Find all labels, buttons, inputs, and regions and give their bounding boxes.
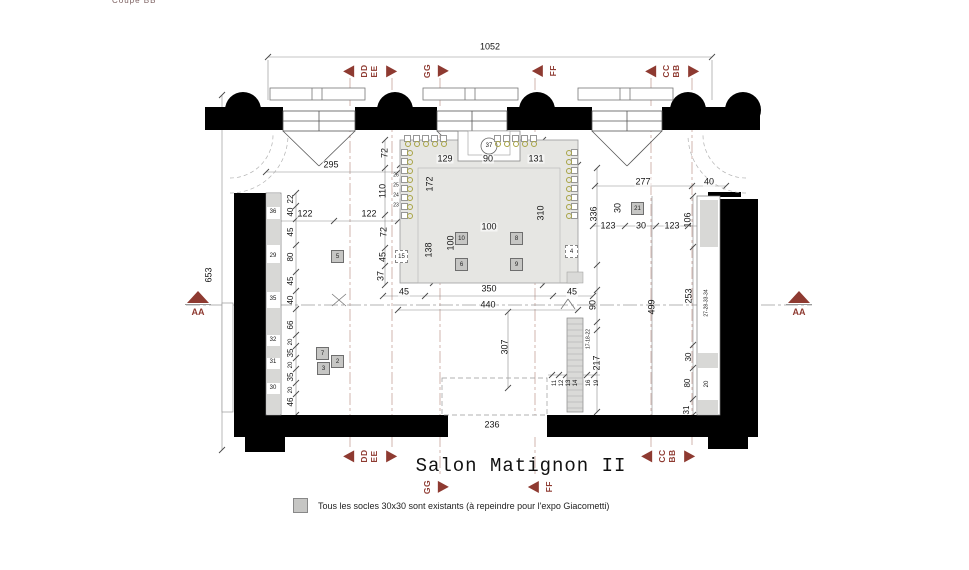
carpet xyxy=(400,140,578,283)
legend: Tous les socles 30x30 sont existants (à … xyxy=(293,498,609,513)
plan-title: Salon Matignon II xyxy=(416,455,627,477)
bench xyxy=(567,272,583,412)
window-sills xyxy=(270,88,673,100)
right-niche-strip xyxy=(697,196,720,415)
plan-linework xyxy=(0,0,969,570)
circled-ref-37 xyxy=(481,138,497,154)
legend-text: Tous les socles 30x30 sont existants (à … xyxy=(318,501,609,511)
legend-socle-swatch xyxy=(293,498,308,513)
floor-plan-sheet: 1052295129901312774012212212330123106336… xyxy=(0,0,969,570)
left-outer-niche xyxy=(222,303,233,412)
door-zone-dashed xyxy=(442,378,547,415)
corner-note-clipped: Coupe BB xyxy=(112,0,156,5)
left-niche-strip xyxy=(266,193,281,415)
